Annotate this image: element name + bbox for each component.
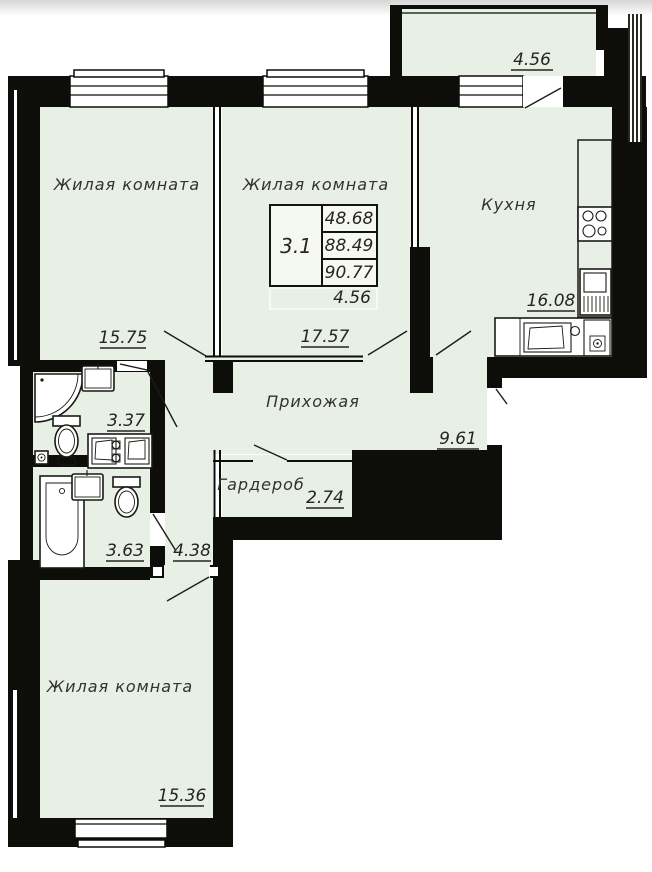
fridge-icon	[580, 269, 611, 315]
sink-icon	[72, 470, 103, 500]
stamp-living-area: 48.68	[325, 209, 374, 229]
sink-icon	[82, 362, 114, 391]
window-kitchen	[459, 76, 523, 107]
floor-drain-icon	[35, 451, 48, 464]
living2-label: Жилая комната	[242, 175, 389, 194]
window-living2	[263, 70, 368, 107]
living3-door-opening	[164, 565, 210, 578]
stamp-plan-number: 3.1	[280, 234, 312, 258]
window-living1	[70, 70, 168, 107]
washer-unit-icon	[88, 434, 152, 468]
stamp-floor-area: 88.49	[325, 236, 374, 256]
living1-area: 15.75	[99, 328, 148, 348]
hallway-area: 9.61	[439, 429, 477, 449]
kitchen-label: Кухня	[481, 195, 536, 214]
window-living3	[75, 819, 167, 847]
bathroom-small-area: 3.37	[107, 411, 145, 431]
stamp-balcony-area: 4.56	[333, 288, 371, 308]
living3-area: 15.36	[158, 786, 207, 806]
balcony-door-opening	[523, 76, 563, 107]
wardrobe-area: 2.74	[306, 488, 344, 508]
floorplan-page: 3.1 48.68 88.49 90.77 4.56 Жилая комната…	[0, 0, 652, 872]
wardrobe-label: Гардероб	[217, 475, 305, 494]
hallway-label: Прихожая	[266, 392, 360, 411]
toilet-icon	[113, 477, 140, 517]
living3-label: Жилая комната	[46, 677, 193, 696]
kitchen-sink-icon	[495, 318, 612, 356]
stove-icon	[578, 207, 612, 241]
living1-label: Жилая комната	[53, 175, 200, 194]
floorplan-drawing: 3.1 48.68 88.49 90.77 4.56 Жилая комната…	[0, 0, 652, 872]
stamp-total-area: 90.77	[325, 263, 374, 283]
hatch-wall	[628, 14, 642, 142]
door-jamb	[153, 567, 162, 576]
living2-area: 17.57	[301, 327, 350, 347]
corridor-area: 4.38	[173, 541, 211, 561]
bathroom-large-area: 3.63	[106, 541, 144, 561]
entrance-door-opening	[487, 388, 502, 445]
kitchen-area: 16.08	[527, 291, 576, 311]
door-jamb	[209, 567, 218, 576]
balcony-floor	[402, 9, 596, 79]
balcony-area: 4.56	[513, 50, 551, 70]
living-room-1-floor	[40, 103, 213, 360]
